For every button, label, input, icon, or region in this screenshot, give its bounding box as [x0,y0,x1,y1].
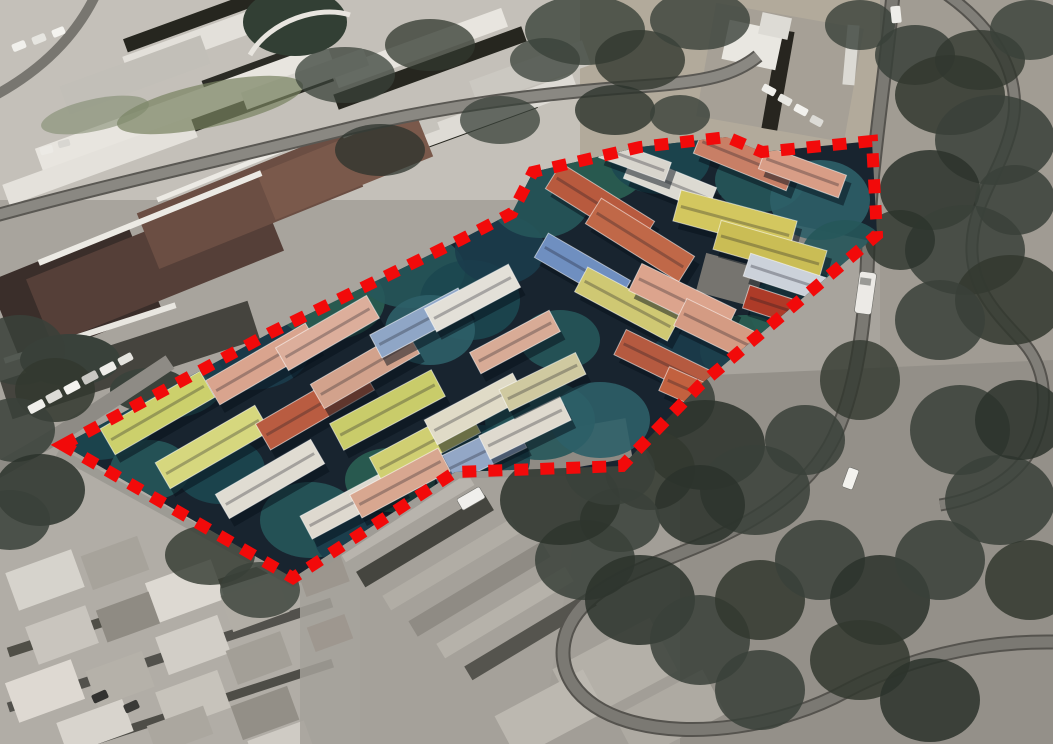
aerial-map-view[interactable] [0,0,1053,744]
satellite-canvas [0,0,1053,744]
